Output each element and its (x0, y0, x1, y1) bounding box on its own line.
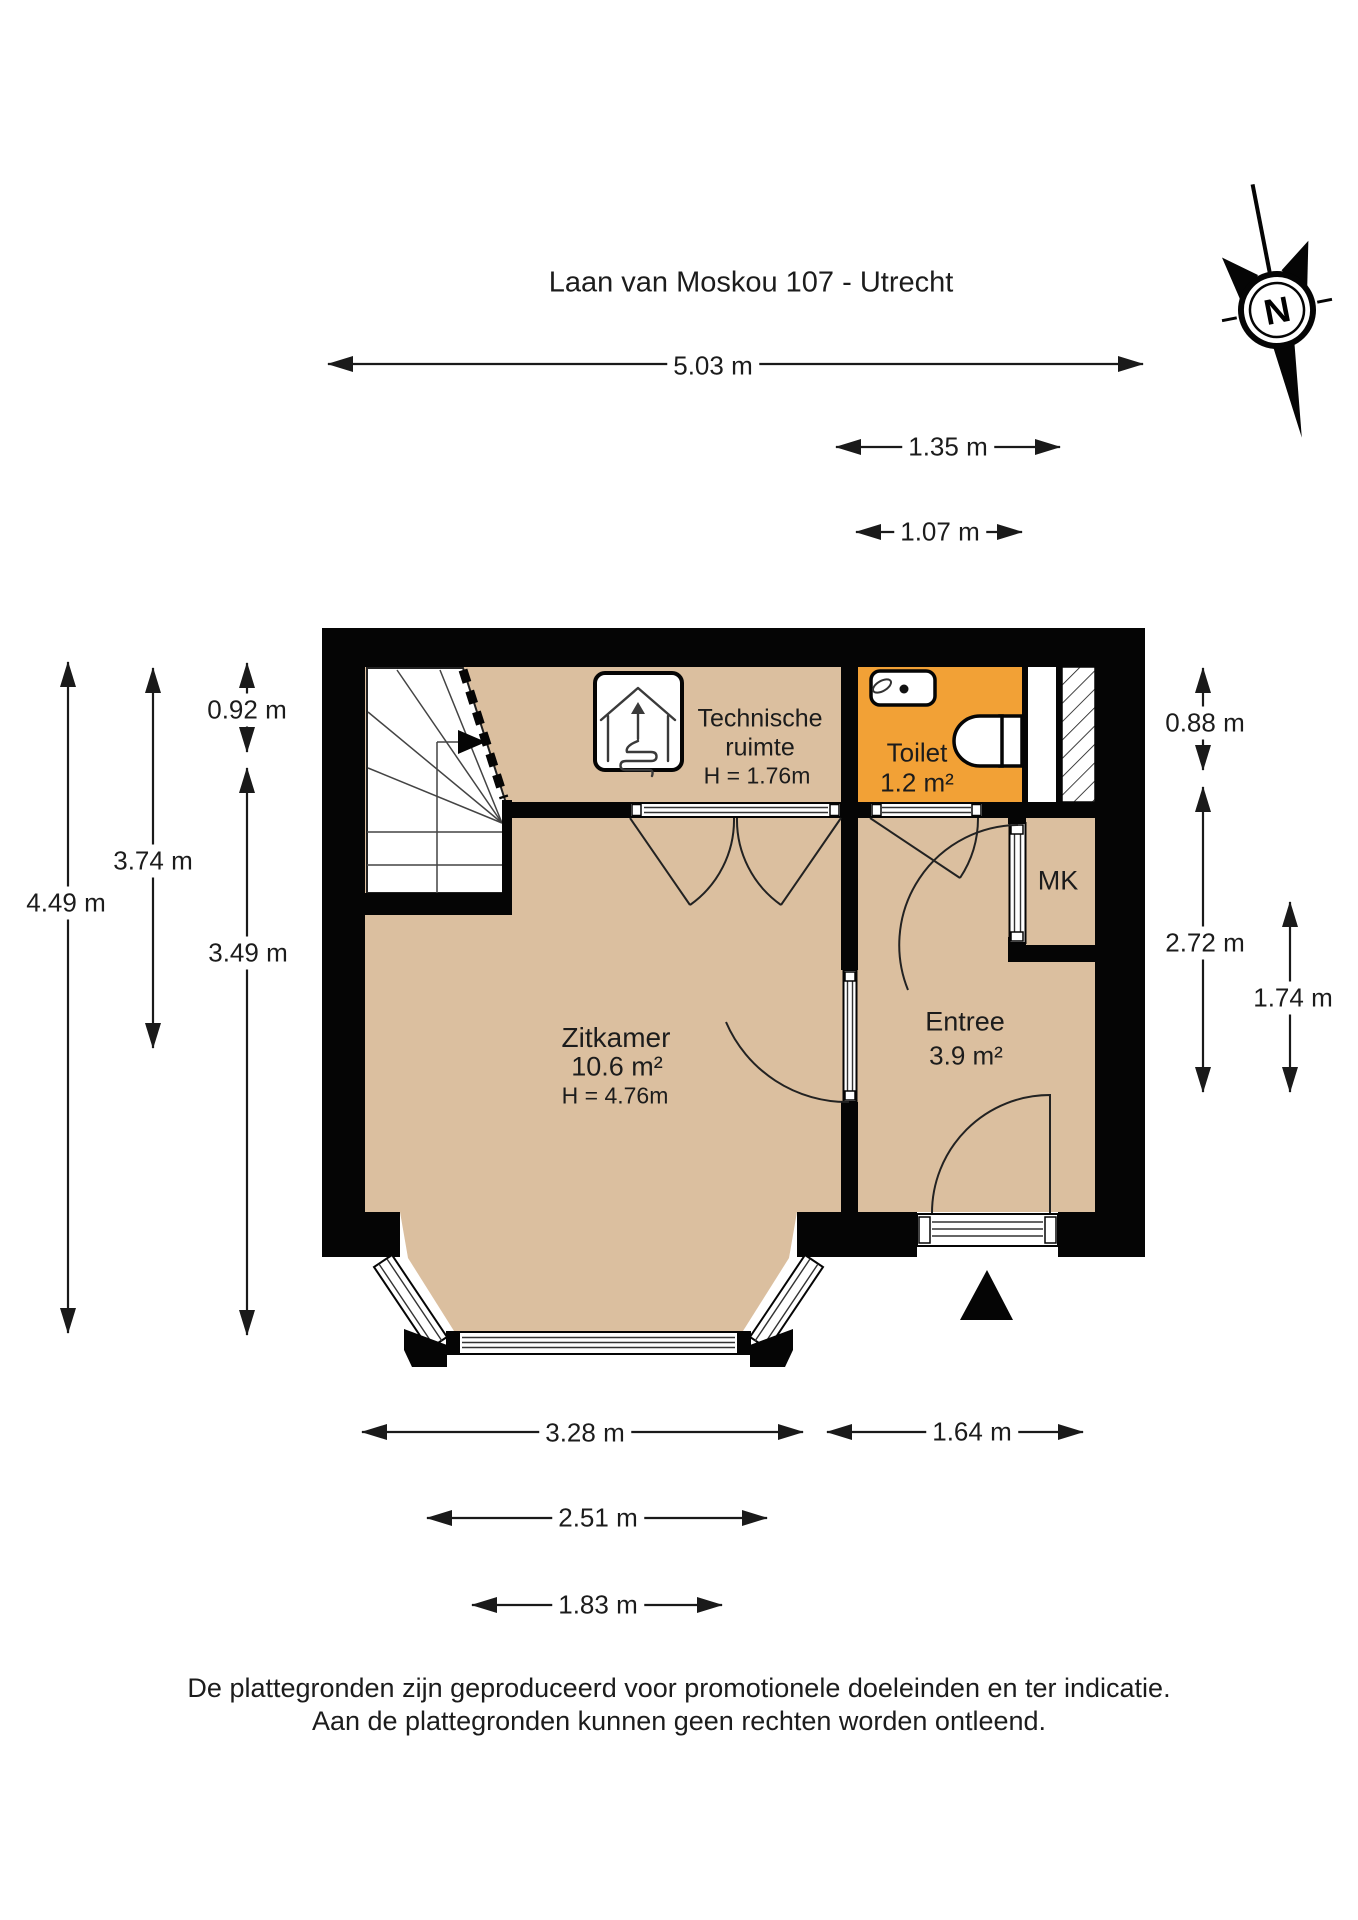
page-title: Laan van Moskou 107 - Utrecht (549, 267, 954, 300)
niche (1028, 667, 1056, 802)
wall-top (322, 628, 1145, 667)
disclaimer: De plattegronden zijn geproduceerd voor … (0, 1672, 1358, 1738)
entrance-marker-icon (960, 1270, 1013, 1320)
toilet-bowl-icon (954, 716, 1002, 766)
dim-right-entree: 2.72 m (1159, 927, 1251, 960)
dim-right-toilet: 0.88 m (1159, 707, 1251, 740)
boiler-icon (595, 673, 682, 776)
room-area-zitkamer: 10.6 m² (571, 1052, 663, 1083)
dim-bottom-zitkamer: 3.28 m (539, 1417, 631, 1450)
shaft-hatch (1062, 667, 1095, 802)
drain-icon (900, 685, 909, 694)
room-label-technische-2: ruimte (725, 734, 794, 763)
dim-bottom-entree: 1.64 m (926, 1416, 1018, 1449)
room-label-toilet: Toilet (887, 738, 948, 769)
dim-width-toilet-zone: 1.35 m (902, 431, 994, 464)
room-label-technische-1: Technische (697, 705, 822, 734)
dim-left-374: 3.74 m (107, 845, 199, 878)
dim-left-zitkamer: 3.49 m (202, 937, 294, 970)
dim-width-total: 5.03 m (667, 350, 759, 383)
compass-icon: N (1198, 174, 1357, 449)
room-label-mk: MK (1038, 866, 1079, 897)
disclaimer-line-2: Aan de plattegronden kunnen geen rechten… (0, 1705, 1358, 1738)
room-height-technische: H = 1.76m (704, 763, 811, 790)
room-label-entree: Entree (925, 1007, 1005, 1038)
dim-width-toilet: 1.07 m (894, 516, 986, 549)
bay-floor (400, 1212, 797, 1331)
wall-right (1095, 628, 1145, 1257)
dim-left-total: 4.49 m (20, 887, 112, 920)
wall-left (322, 667, 365, 1257)
room-height-zitkamer: H = 4.76m (562, 1083, 669, 1110)
room-label-zitkamer: Zitkamer (562, 1022, 671, 1054)
dim-left-technische: 0.92 m (201, 694, 293, 727)
dim-right-174: 1.74 m (1247, 982, 1339, 1015)
room-area-entree: 3.9 m² (929, 1041, 1003, 1072)
dim-bottom-251: 2.51 m (552, 1502, 644, 1535)
dim-bottom-183: 1.83 m (552, 1589, 644, 1622)
front-door-threshold (917, 1214, 1058, 1246)
floorplan-page: N Laan van Moskou 107 - Utrecht 5.03 m 1… (0, 0, 1358, 1920)
room-area-toilet: 1.2 m² (880, 768, 954, 799)
disclaimer-line-1: De plattegronden zijn geproduceerd voor … (0, 1672, 1358, 1705)
